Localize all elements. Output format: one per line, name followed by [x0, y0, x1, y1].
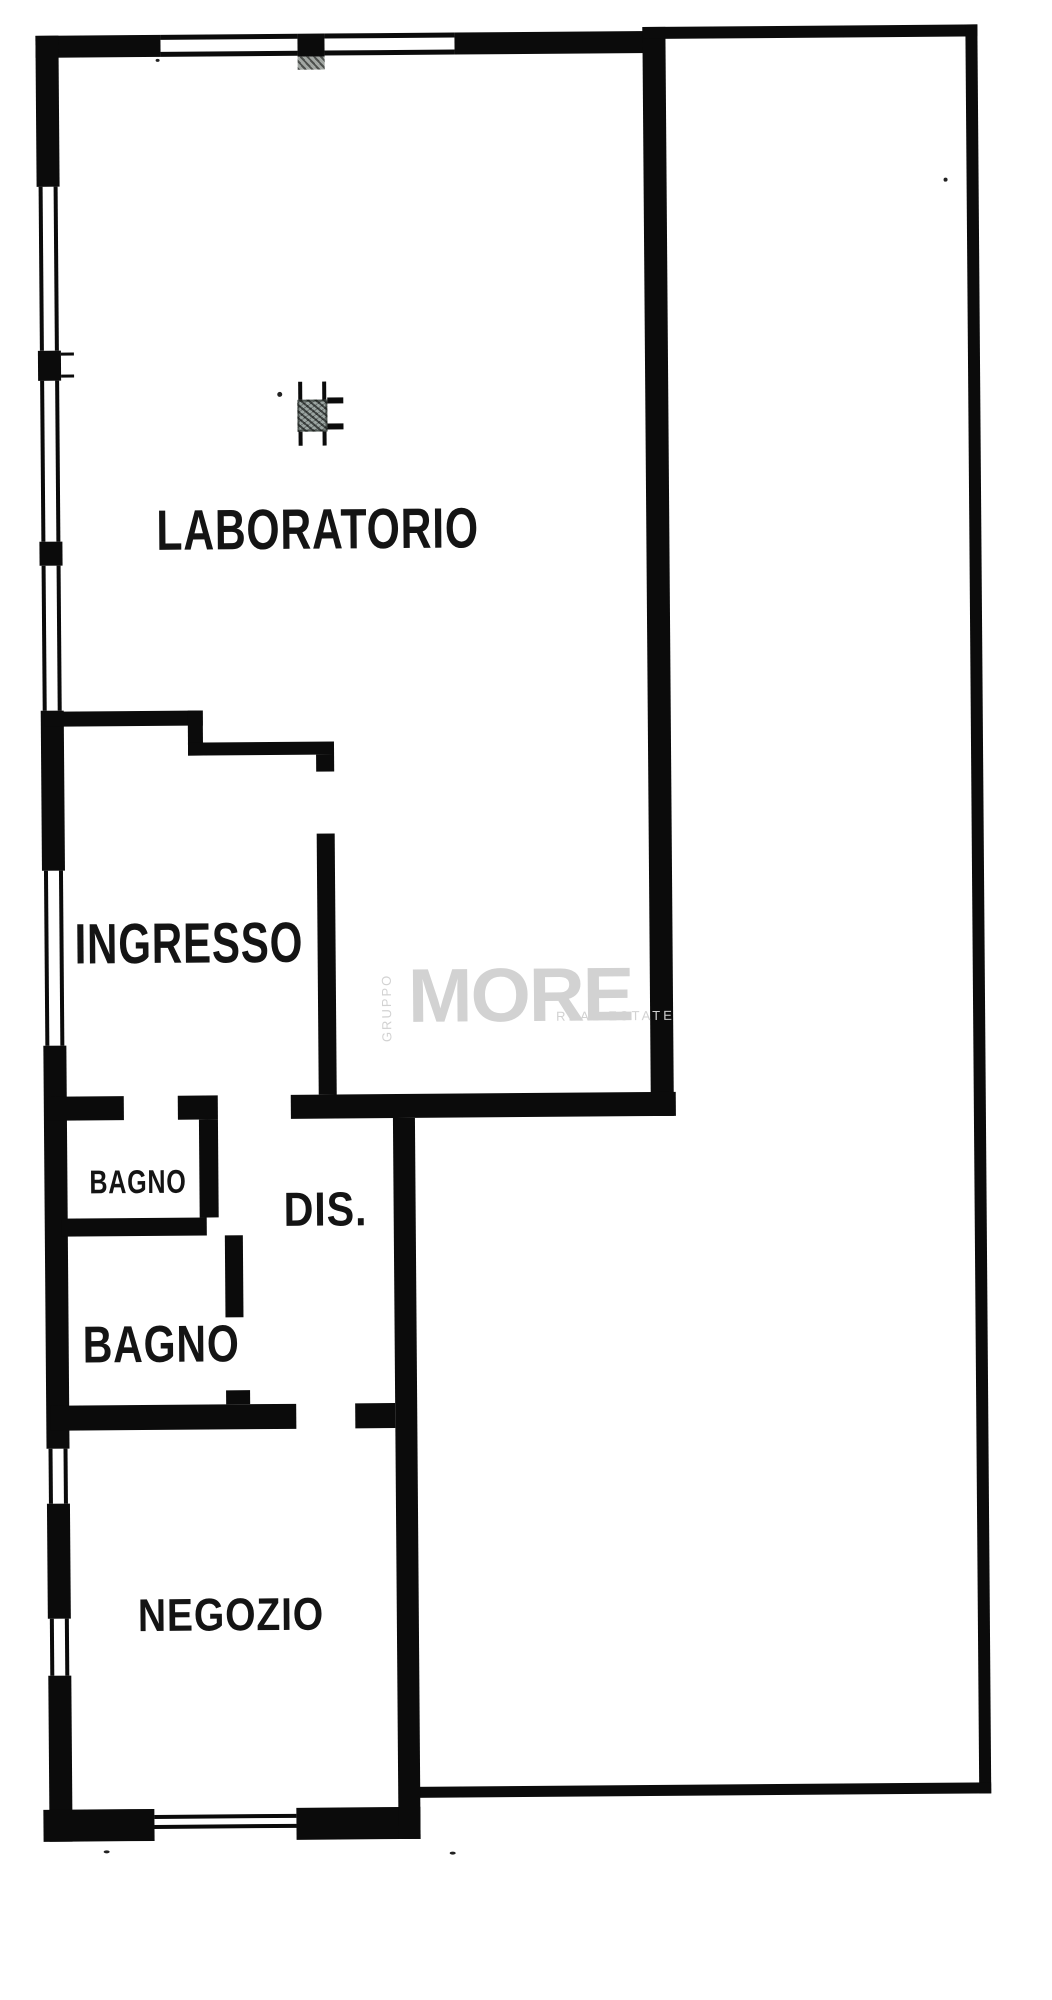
pier-hatch: [298, 57, 325, 70]
room-label-bagno-large: BAGNO: [82, 1318, 239, 1371]
scan-speck: [944, 178, 948, 182]
window-opening: [54, 187, 59, 351]
shop-window-opening: [154, 1814, 296, 1819]
ingresso-top-wall: [45, 711, 203, 727]
window-opening: [50, 1619, 54, 1676]
window-opening: [49, 1449, 53, 1504]
window-opening: [42, 566, 47, 711]
room-label-negozio: NEGOZIO: [138, 1591, 325, 1638]
left-wall-pier: [39, 542, 62, 566]
wall-pier: [297, 34, 324, 57]
scan-speck: [104, 1850, 110, 1853]
floor-plan: GRUPPO MORE REAL ESTATE LABORATORIO INGR…: [0, 0, 1052, 2000]
negozio-right-wall: [393, 1118, 421, 1839]
bagno-divider-wall: [62, 1218, 207, 1237]
scan-speck: [450, 1852, 456, 1855]
negozio-top-wall-pier: [355, 1403, 395, 1428]
window-opening: [64, 1449, 68, 1504]
window-opening: [59, 871, 64, 1046]
left-wall-segment: [41, 711, 65, 871]
room-label-ingresso: INGRESSO: [74, 915, 303, 974]
court-right-wall: [965, 24, 991, 1793]
laboratorio-bottom-wall: [291, 1092, 676, 1119]
shop-window-opening: [154, 1824, 296, 1829]
bagno-top-wall-pier: [178, 1095, 218, 1119]
window-opening: [44, 871, 49, 1046]
left-wall-segment: [35, 36, 59, 187]
court-top-wall: [642, 24, 977, 39]
top-wall-segment: [454, 31, 652, 55]
window-opening: [325, 50, 455, 56]
bagno-top-wall: [48, 1096, 124, 1121]
watermark-gruppo: GRUPPO: [380, 974, 394, 1042]
court-bottom-wall: [414, 1782, 991, 1798]
pier-tick: [61, 375, 74, 378]
structural-column: [297, 400, 327, 432]
watermark-tagline: REAL ESTATE: [556, 1009, 675, 1023]
left-wall-pier: [47, 1504, 71, 1619]
pier-tick: [61, 353, 74, 356]
ingresso-top-wall: [188, 742, 334, 756]
column-tie-line: [327, 397, 343, 403]
window-opening: [55, 381, 60, 542]
room-label-bagno-small: BAGNO: [89, 1165, 186, 1199]
scan-speck: [277, 392, 282, 397]
column-tie-line: [327, 423, 343, 429]
window-opening: [65, 1619, 69, 1676]
laboratorio-right-wall: [642, 27, 674, 1116]
window-opening: [39, 187, 44, 351]
window-opening: [160, 34, 297, 40]
room-label-laboratorio: LABORATORIO: [156, 500, 479, 560]
window-opening: [40, 381, 45, 542]
door-jamb: [316, 754, 334, 771]
ingresso-right-wall: [317, 833, 337, 1094]
window-opening: [57, 566, 62, 711]
room-label-dis: DIS.: [283, 1186, 367, 1235]
bagno-large-right-wall: [225, 1235, 244, 1317]
negozio-top-wall: [50, 1404, 296, 1431]
window-opening: [161, 51, 298, 57]
left-wall-pier: [38, 351, 61, 381]
floor-plan-page: GRUPPO MORE REAL ESTATE LABORATORIO INGR…: [0, 0, 1052, 2000]
shopfront-wall-segment: [43, 1809, 154, 1842]
bagno-small-right-wall: [199, 1119, 219, 1217]
window-opening: [324, 33, 454, 39]
door-jamb: [226, 1390, 250, 1404]
scan-speck: [156, 59, 160, 62]
